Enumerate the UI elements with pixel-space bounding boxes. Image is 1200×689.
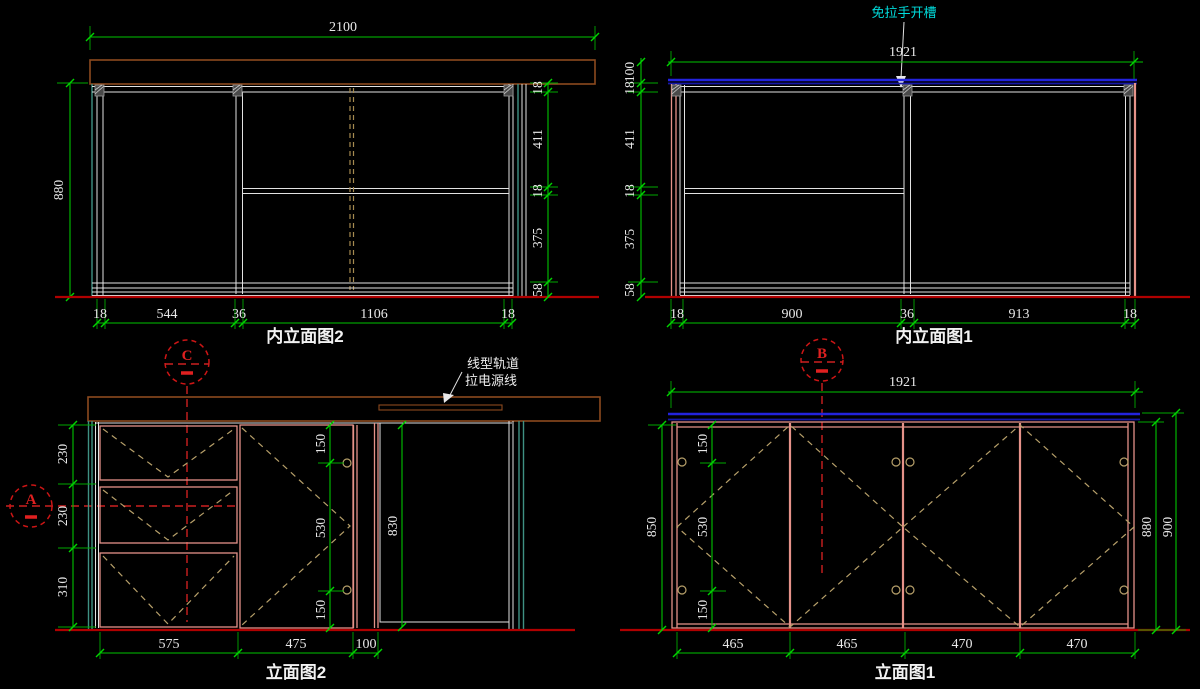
dim-label: 900 [782,307,803,322]
hinge-circle [892,458,900,466]
drawing-title: 立面图1 [875,662,935,682]
door-swing-mark [242,428,350,625]
dimension-right-chain: 18 411 18 375 58 [530,79,558,301]
dimension-bottom-chain: 18 900 36 913 18 [667,299,1139,329]
hinge-circle [343,586,351,594]
marker-label: A [26,492,37,508]
linear-track [379,405,502,410]
note-line-2: 拉电源线 [465,373,517,388]
dim-label: 18 [670,307,684,322]
dimension-bottom-chain: 18 544 36 1106 18 [93,299,516,329]
drawing-elevation-1: 1921 [620,375,1190,682]
drawing-title: 内立面图2 [266,326,343,346]
dim-label: 150 [313,600,328,621]
drawer-swing-mark [103,556,234,624]
dim-label: 530 [695,517,710,538]
drawer-front [100,487,237,543]
dim-label: 375 [622,229,637,250]
dim-label: 470 [1067,637,1088,652]
dim-label: 310 [55,577,70,598]
dim-label: 465 [723,637,744,652]
dim-label: 530 [313,518,328,539]
dim-label: 465 [837,637,858,652]
hinge-circle [892,586,900,594]
dim-label: 1106 [360,307,387,322]
leader-arrowhead [443,393,454,403]
dim-label: 150 [313,434,328,455]
door-swing-mark [903,425,1134,627]
cabinet-carcass [672,83,1136,296]
drawer-front [100,553,237,627]
marker-label: B [817,346,827,362]
dim-label: 150 [695,434,710,455]
dim-label: 880 [1139,517,1154,538]
hinge-circle [1120,458,1128,466]
hinge-circle [1120,586,1128,594]
section-marker-b: B [801,339,843,576]
dim-label: 18 [530,81,545,95]
dim-label: 1921 [889,375,917,390]
dim-label: 100 [622,62,637,83]
hinge-circle [678,586,686,594]
dim-label: 18 [530,184,545,198]
dim-label: 913 [1009,307,1030,322]
cad-canvas: 2100 880 [0,0,1200,689]
drawer-swing-mark [103,429,234,477]
cabinet-door [240,425,353,628]
drawer-stack [100,426,237,627]
dimension-door-chain: 150 530 150 [313,421,344,632]
hinge-circle [343,459,351,467]
dim-label: 411 [622,129,637,149]
drawing-inner-elevation-2: 2100 880 [51,20,599,346]
dimension-left-chain: 230 230 310 [55,421,96,631]
dim-label: 18 [93,307,107,322]
drawer-swing-mark [103,490,234,540]
dim-label: 18 [622,81,637,95]
hinge-circle [906,458,914,466]
dim-label: 475 [286,637,307,652]
dim-label: 411 [530,129,545,149]
dim-label: 850 [644,517,659,538]
dim-label: 375 [530,228,545,249]
cabinet-carcass [92,84,526,297]
drawing-title: 内立面图1 [895,326,972,346]
dim-label: 2100 [329,20,357,35]
drawing-title: 立面图2 [266,662,326,682]
cabinet-carcass [89,421,524,629]
countertop [90,60,595,84]
dimension-top-1921: 1921 [667,45,1143,79]
dim-label: 18 [501,307,515,322]
dim-label: 575 [159,637,180,652]
dim-label: 150 [695,600,710,621]
hinge-circle [906,586,914,594]
dim-label: 100 [356,637,377,652]
handle-groove-note: 免拉手开槽 [871,5,936,20]
cad-drawing-sheet: 2100 880 [0,0,1200,689]
note-line-1: 线型轨道 [467,356,519,371]
drawing-elevation-2: 线型轨道 拉电源线 [55,356,600,682]
drawer-front [100,426,237,480]
dim-label: 18 [622,184,637,198]
dimension-open-height: 830 [385,421,406,631]
drawing-inner-elevation-1: 免拉手开槽 1921 [622,5,1190,346]
dimension-left-chain: 100 18 411 18 375 58 [622,58,658,301]
dim-label: 830 [385,516,400,537]
dim-label: 1921 [889,45,917,60]
dim-label: 880 [51,180,66,201]
dimension-left-880: 880 [51,79,88,301]
track-note: 线型轨道 拉电源线 [443,356,519,403]
countertop [88,397,600,421]
section-marker-a: A [6,485,237,527]
dimension-top-2100: 2100 [86,20,599,50]
dim-label: 470 [952,637,973,652]
dim-label: 230 [55,444,70,465]
dimension-top-1921: 1921 [667,375,1143,408]
dim-label: 900 [1160,517,1175,538]
dim-label: 58 [622,283,637,297]
dimension-left-850: 850 [644,421,676,634]
cabinet-doors [672,422,1134,628]
section-marker-c: C [165,340,209,622]
dim-label: 544 [157,307,178,322]
dim-label: 58 [530,283,545,297]
dim-label: 36 [232,307,246,322]
dimension-right-heights: 880 900 [1138,409,1186,634]
hinge-circle [678,458,686,466]
dim-label: 230 [55,506,70,527]
dimension-bottom-chain: 465 465 470 470 [673,632,1139,659]
marker-label: C [182,348,193,364]
dimension-bottom-chain: 575 475 100 [96,632,382,659]
dimension-hinge-chain: 150 530 150 [695,421,726,632]
dim-label: 18 [1123,307,1137,322]
dim-label: 36 [900,307,914,322]
